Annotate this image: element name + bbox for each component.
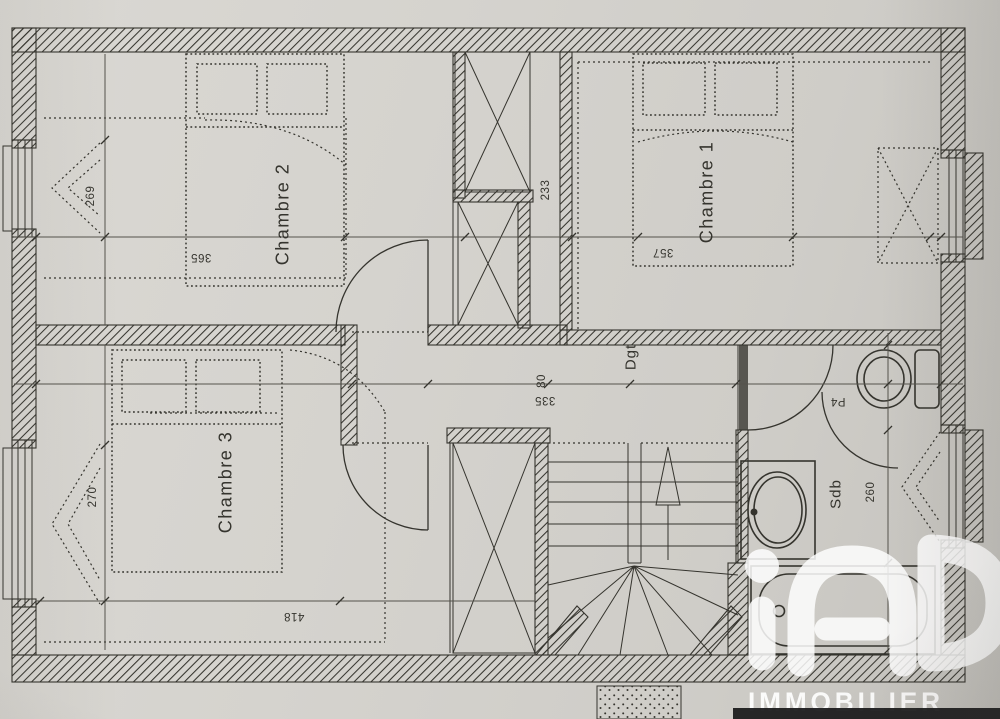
photo-edge-strip bbox=[733, 708, 1000, 719]
floorplan-photo: Chambre 2 Chambre 1 Chambre 3 Dgt Sdb 26… bbox=[0, 0, 1000, 719]
iad-logo-mark bbox=[0, 0, 1000, 719]
